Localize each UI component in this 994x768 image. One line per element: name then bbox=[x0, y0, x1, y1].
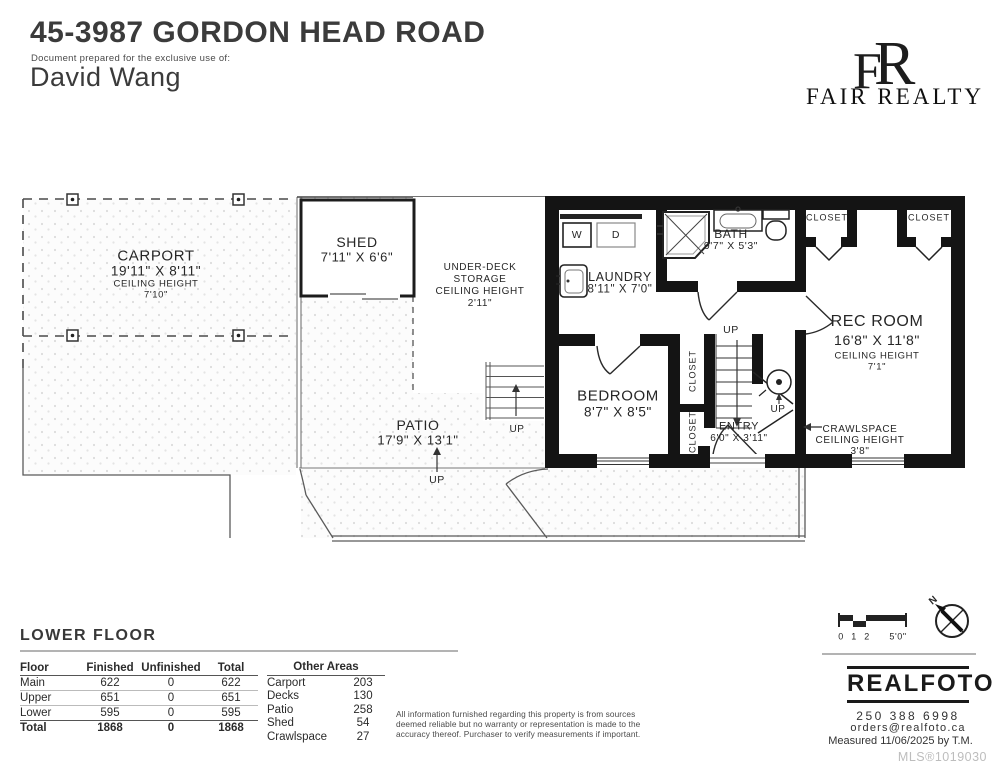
scale-tick-0: 0 bbox=[838, 633, 844, 642]
floor-name-heading: LOWER FLOOR bbox=[20, 627, 156, 645]
row-lower-unfinished: 0 bbox=[138, 707, 204, 719]
crawlspace-line2: CEILING HEIGHT bbox=[816, 436, 905, 446]
row-main-unfinished: 0 bbox=[138, 677, 204, 689]
other-areas-title: Other Areas bbox=[267, 661, 385, 676]
carport-ceiling-value: 7'10" bbox=[144, 290, 168, 300]
table-row-total: Total 1868 0 1868 bbox=[20, 721, 258, 735]
shed-label: SHED bbox=[336, 235, 377, 249]
row-upper-total: 651 bbox=[204, 692, 258, 704]
col-unfinished: Unfinished bbox=[138, 662, 204, 674]
up-label-stairs: UP bbox=[723, 325, 739, 336]
carport-label: CARPORT bbox=[117, 249, 194, 264]
page-title: 45-3987 GORDON HEAD ROAD bbox=[30, 16, 485, 50]
patio-label: PATIO bbox=[397, 418, 440, 432]
dryer-label: D bbox=[612, 230, 620, 241]
mls-number: MLS®1019030 bbox=[898, 750, 987, 764]
brand-name: FAIR REALTY bbox=[806, 84, 984, 110]
other-decks-value: 130 bbox=[343, 690, 383, 702]
closet-label-1: CLOSET bbox=[806, 214, 848, 223]
other-shed-value: 54 bbox=[343, 717, 383, 729]
row-upper-finished: 651 bbox=[82, 692, 138, 704]
col-finished: Finished bbox=[82, 662, 138, 674]
crawlspace-line3: 3'8" bbox=[851, 447, 870, 457]
under-deck-line2: STORAGE bbox=[454, 275, 507, 285]
under-deck-line4: 2'11" bbox=[468, 299, 492, 309]
other-patio-name: Patio bbox=[267, 704, 343, 716]
other-shed-name: Shed bbox=[267, 717, 343, 729]
patio-dims: 17'9" X 13'1" bbox=[377, 434, 458, 447]
list-item: Shed 54 bbox=[267, 717, 385, 731]
list-item: Carport 203 bbox=[267, 676, 385, 690]
crawlspace-line1: CRAWLSPACE bbox=[823, 425, 898, 435]
under-deck-line1: UNDER-DECK bbox=[444, 263, 517, 273]
scale-tick-5: 5'0" bbox=[889, 633, 906, 642]
rec-room-ceiling-value: 7'1" bbox=[868, 362, 886, 372]
rec-room-ceiling-label: CEILING HEIGHT bbox=[835, 351, 920, 361]
other-carport-name: Carport bbox=[267, 677, 343, 689]
row-main-name: Main bbox=[20, 677, 82, 689]
list-item: Patio 258 bbox=[267, 703, 385, 717]
row-lower-name: Lower bbox=[20, 707, 82, 719]
up-label-heater: UP bbox=[770, 405, 785, 415]
other-decks-name: Decks bbox=[267, 690, 343, 702]
realfoto-phone: 250 388 6998 bbox=[835, 709, 981, 723]
north-compass bbox=[935, 604, 968, 637]
closet-label-3: CLOSET bbox=[689, 350, 698, 392]
under-deck-line3: CEILING HEIGHT bbox=[436, 287, 525, 297]
up-label-outdoor-stairs: UP bbox=[509, 425, 524, 435]
bath-dims: 9'7" X 5'3" bbox=[704, 241, 758, 252]
table-row: Lower 595 0 595 bbox=[20, 706, 258, 721]
rec-room-dims: 16'8" X 11'8" bbox=[834, 333, 920, 347]
row-total-unfinished: 0 bbox=[138, 722, 204, 734]
disclaimer-text: All information furnished regarding this… bbox=[396, 709, 654, 739]
row-main-total: 622 bbox=[204, 677, 258, 689]
row-total-total: 1868 bbox=[204, 722, 258, 734]
washer-label: W bbox=[572, 230, 583, 241]
scale-tick-2: 2 bbox=[864, 633, 870, 642]
other-crawlspace-name: Crawlspace bbox=[267, 731, 343, 743]
table-row: Main 622 0 622 bbox=[20, 676, 258, 691]
table-row: Upper 651 0 651 bbox=[20, 691, 258, 706]
closet-label-4: CLOSET bbox=[689, 411, 698, 453]
footer-rules bbox=[20, 651, 976, 654]
area-summary-table: Floor Finished Unfinished Total Main 622… bbox=[20, 661, 258, 735]
row-total-name: Total bbox=[20, 722, 82, 734]
row-lower-finished: 595 bbox=[82, 707, 138, 719]
bedroom-label: BEDROOM bbox=[577, 389, 659, 404]
row-lower-total: 595 bbox=[204, 707, 258, 719]
row-upper-name: Upper bbox=[20, 692, 82, 704]
carport-ceiling-label: CEILING HEIGHT bbox=[114, 279, 199, 289]
floor-plan-drawing: F R bbox=[0, 0, 994, 768]
other-carport-value: 203 bbox=[343, 677, 383, 689]
closet-label-2: CLOSET bbox=[908, 214, 950, 223]
laundry-label: LAUNDRY bbox=[588, 271, 652, 284]
realfoto-email: orders@realfoto.ca bbox=[835, 722, 981, 734]
row-main-finished: 622 bbox=[82, 677, 138, 689]
entry-label: ENTRY bbox=[719, 422, 759, 433]
carport-dims: 19'11" X 8'11" bbox=[111, 264, 201, 278]
scale-tick-1: 1 bbox=[851, 633, 857, 642]
row-total-finished: 1868 bbox=[82, 722, 138, 734]
area-table-header: Floor Finished Unfinished Total bbox=[20, 661, 258, 676]
shed-dims: 7'11" X 6'6" bbox=[321, 251, 393, 264]
rec-room-label: REC ROOM bbox=[831, 314, 924, 330]
list-item: Crawlspace 27 bbox=[267, 730, 385, 744]
entry-dims: 6'0" X 3'11" bbox=[710, 434, 767, 444]
client-name: David Wang bbox=[30, 62, 181, 93]
col-floor: Floor bbox=[20, 662, 82, 674]
list-item: Decks 130 bbox=[267, 690, 385, 704]
other-areas-table: Other Areas Carport 203 Decks 130 Patio … bbox=[267, 661, 385, 744]
scale-bar bbox=[838, 613, 907, 627]
other-crawlspace-value: 27 bbox=[343, 731, 383, 743]
outdoor-stairs bbox=[483, 362, 545, 421]
measured-by-text: Measured 11/06/2025 by T.M. bbox=[820, 735, 981, 747]
row-upper-unfinished: 0 bbox=[138, 692, 204, 704]
floor-plan-page: F R 45-3987 GORDON HEAD ROAD Document pr… bbox=[0, 0, 994, 768]
up-label-patio: UP bbox=[429, 475, 445, 486]
bath-label: BATH bbox=[714, 228, 748, 240]
col-total: Total bbox=[204, 662, 258, 674]
laundry-dims: 8'11" X 7'0" bbox=[588, 284, 653, 296]
bedroom-dims: 8'7" X 8'5" bbox=[584, 405, 652, 419]
realfoto-logo: REALFOTO bbox=[847, 670, 969, 698]
other-patio-value: 258 bbox=[343, 704, 383, 716]
